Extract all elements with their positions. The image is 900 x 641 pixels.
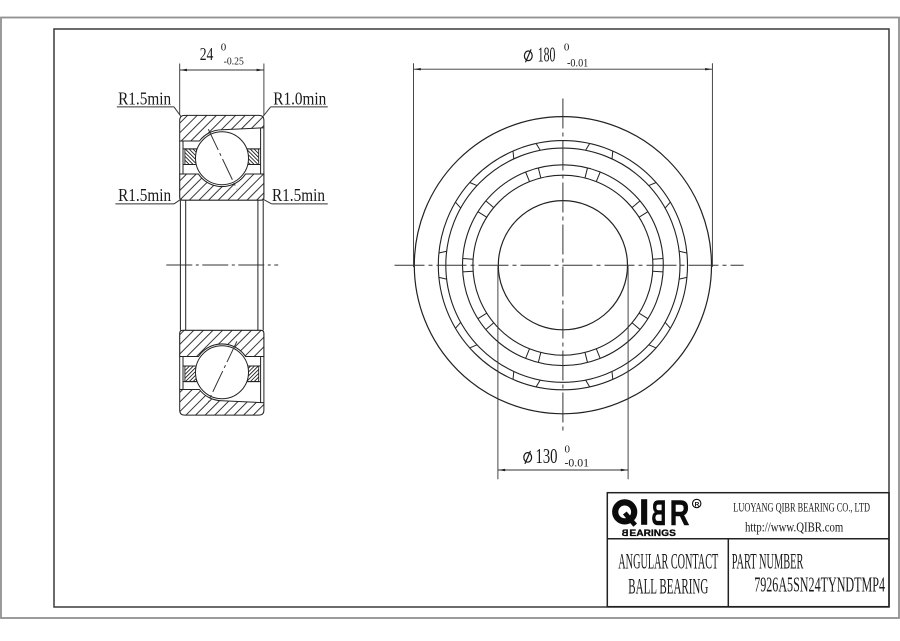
svg-text:LUOYANG QIBR BEARING CO., LTD: LUOYANG QIBR BEARING CO., LTD [733,500,870,515]
svg-text:130: 130 [536,444,558,468]
svg-text:-0.01: -0.01 [565,458,590,470]
svg-text:R1.5min: R1.5min [118,185,171,205]
svg-text:R1.5min: R1.5min [118,89,171,109]
svg-text:R1.5min: R1.5min [272,185,325,205]
svg-text:-0.01: -0.01 [567,57,589,69]
svg-text:0: 0 [565,444,571,456]
svg-text:EARINGS: EARINGS [629,528,676,538]
svg-text:180: 180 [538,43,556,67]
svg-text:R: R [695,501,700,508]
svg-text:0: 0 [564,41,570,53]
svg-text:B: B [621,528,628,538]
svg-text:7926A5SN24TYNDTMP4: 7926A5SN24TYNDTMP4 [754,573,885,597]
svg-text:PART NUMBER: PART NUMBER [732,548,804,573]
svg-text:BALL BEARING: BALL BEARING [628,573,708,598]
svg-text:R1.0min: R1.0min [273,89,326,109]
svg-text:-0.25: -0.25 [224,56,245,68]
svg-text:24: 24 [200,44,214,64]
svg-text:ANGULAR CONTACT: ANGULAR CONTACT [618,548,718,573]
svg-text:0: 0 [221,42,227,54]
svg-text:http://www.QIBR.com: http://www.QIBR.com [745,520,844,535]
